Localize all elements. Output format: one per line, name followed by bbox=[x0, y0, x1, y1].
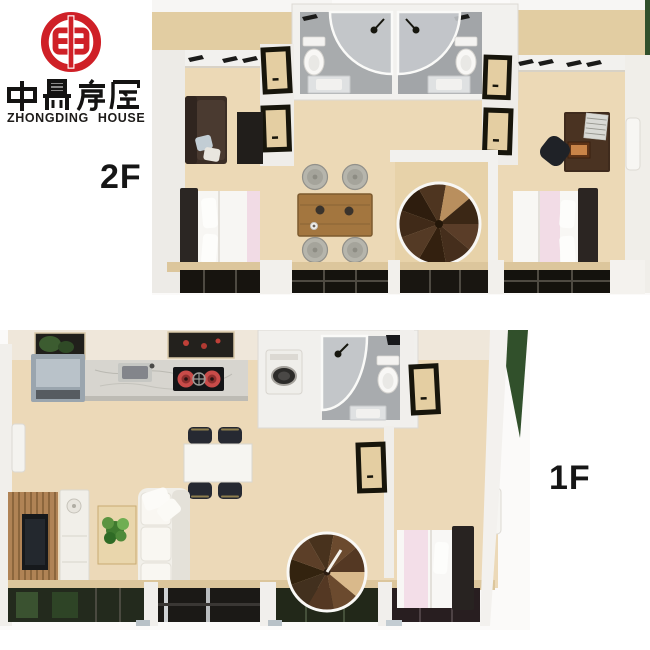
pillow bbox=[201, 197, 219, 228]
wall-window bbox=[411, 366, 438, 413]
washbasin bbox=[308, 76, 350, 93]
headboard bbox=[578, 188, 598, 272]
floorplan-1f-rendering bbox=[0, 330, 530, 630]
toilet bbox=[377, 356, 399, 393]
double-bed bbox=[397, 526, 474, 610]
kitchen-window bbox=[168, 332, 234, 358]
washbasin bbox=[428, 76, 470, 93]
dining-chair bbox=[218, 482, 242, 499]
pillow bbox=[433, 542, 449, 575]
toilet bbox=[455, 37, 477, 75]
spiral-staircase bbox=[288, 533, 366, 611]
stool bbox=[343, 165, 368, 190]
dining-table bbox=[184, 444, 252, 482]
brand-chinese-name: 中鼎房屋 bbox=[0, 0, 1, 1]
book-stack bbox=[584, 113, 608, 140]
stool bbox=[303, 165, 328, 190]
dining-chair bbox=[188, 482, 212, 499]
toilet bbox=[303, 37, 325, 75]
pillow bbox=[201, 233, 219, 264]
stool bbox=[303, 238, 328, 263]
pillow bbox=[559, 235, 576, 264]
wall-window bbox=[263, 49, 290, 92]
wall-window bbox=[485, 110, 511, 153]
kitchen-sink bbox=[118, 363, 155, 382]
stool bbox=[343, 238, 368, 263]
pillow bbox=[559, 200, 576, 229]
floor-label-2f: 2F bbox=[100, 158, 142, 197]
balcony-band-2f bbox=[167, 260, 645, 294]
stair-wall-top bbox=[390, 150, 490, 162]
floorplan-2f bbox=[152, 0, 650, 295]
double-bed bbox=[513, 188, 598, 272]
headboard bbox=[180, 188, 198, 272]
writing-desk bbox=[564, 112, 610, 172]
brand-logo-icon bbox=[40, 7, 102, 77]
floorplan-1f bbox=[0, 330, 530, 630]
water-heater bbox=[12, 424, 25, 472]
brand-english-name: ZHONGDING HOUSE bbox=[7, 111, 147, 125]
glyph-zhong bbox=[9, 81, 35, 111]
glyph-wu bbox=[111, 82, 139, 109]
kitchen bbox=[31, 354, 248, 402]
stairwell-2f bbox=[390, 150, 498, 272]
page: 中鼎房屋 ZHONGDING HOUSE 2F 1F bbox=[0, 0, 650, 650]
bathroom-1f bbox=[258, 330, 418, 428]
spiral-staircase bbox=[398, 183, 480, 265]
brand-block: 中鼎房屋 ZHONGDING HOUSE bbox=[0, 0, 150, 135]
wall-window bbox=[263, 107, 289, 150]
pillow bbox=[203, 147, 221, 163]
wall-window bbox=[485, 57, 510, 98]
logo-vertical bbox=[68, 16, 74, 68]
brand-chinese-wordmark bbox=[6, 79, 140, 113]
range-hood bbox=[31, 354, 85, 402]
stair-wall-east bbox=[488, 150, 498, 272]
dining-table bbox=[298, 194, 372, 236]
wall-right bbox=[625, 55, 650, 293]
dining-chair bbox=[188, 427, 212, 444]
dining-set-1f bbox=[184, 427, 252, 499]
sideboard bbox=[60, 490, 89, 594]
washbasin bbox=[350, 406, 386, 420]
sofa bbox=[185, 96, 227, 164]
double-bed bbox=[180, 188, 260, 272]
loft-band-right bbox=[510, 0, 645, 72]
wall-window bbox=[358, 444, 385, 491]
dining-chair bbox=[218, 427, 242, 444]
white-sofa bbox=[138, 486, 190, 592]
glyph-ding bbox=[43, 81, 71, 110]
headboard bbox=[452, 526, 474, 610]
washing-machine bbox=[266, 350, 302, 394]
glyph-fang bbox=[78, 80, 105, 110]
floor-label-1f: 1F bbox=[549, 459, 591, 498]
gas-stove bbox=[173, 367, 224, 391]
tv-panel bbox=[237, 112, 263, 164]
floorplan-2f-rendering bbox=[152, 0, 650, 295]
coffee-table bbox=[98, 506, 136, 564]
air-conditioner bbox=[626, 118, 640, 170]
